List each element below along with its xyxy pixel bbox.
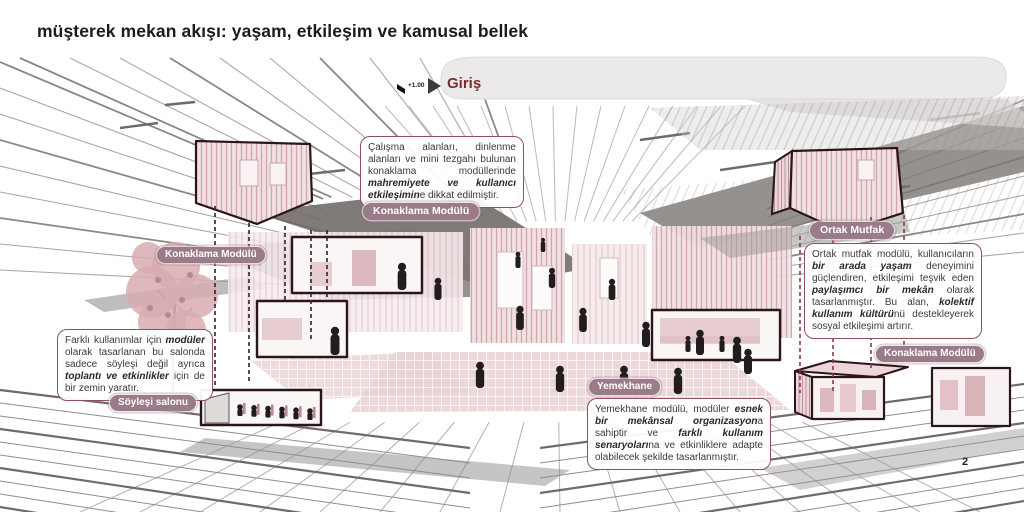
page-number: 2 <box>962 456 968 468</box>
pill-konaklama-center: Konaklama Modülü <box>363 203 479 220</box>
slide-page: müşterek mekan akışı: yaşam, etkileşim v… <box>0 0 1024 512</box>
entrance-arrow-icon <box>428 78 441 94</box>
pill-yemekhane: Yemekhane <box>589 379 660 395</box>
pill-konaklama-right: Konaklama Modülü <box>876 346 984 362</box>
pill-konaklama-left: Konaklama Modülü <box>157 247 265 263</box>
callout-konaklama: Çalışma alanları, dinlenme alanları ve m… <box>360 136 524 208</box>
spot-level-value: +1.00 <box>408 82 424 89</box>
pill-ortak-mutfak: Ortak Mutfak <box>810 222 894 239</box>
spot-level-icon <box>397 84 405 94</box>
entrance-label: Giriş <box>447 75 481 92</box>
pill-soylesi-salonu: Söyleşi salonu <box>110 395 196 411</box>
callout-soylesi: Farklı kullanımlar için modüler olarak t… <box>57 329 213 401</box>
auditorium <box>201 390 321 425</box>
page-title: müşterek mekan akışı: yaşam, etkileşim v… <box>37 21 528 42</box>
callout-yemekhane: Yemekhane modülü, modüler esnek bir mekâ… <box>587 398 771 470</box>
bottom-right-module <box>795 361 908 419</box>
callout-ortak-mutfak: Ortak mutfak modülü, kullanıcıların bir … <box>804 243 982 339</box>
right-edge-module <box>932 368 1010 426</box>
